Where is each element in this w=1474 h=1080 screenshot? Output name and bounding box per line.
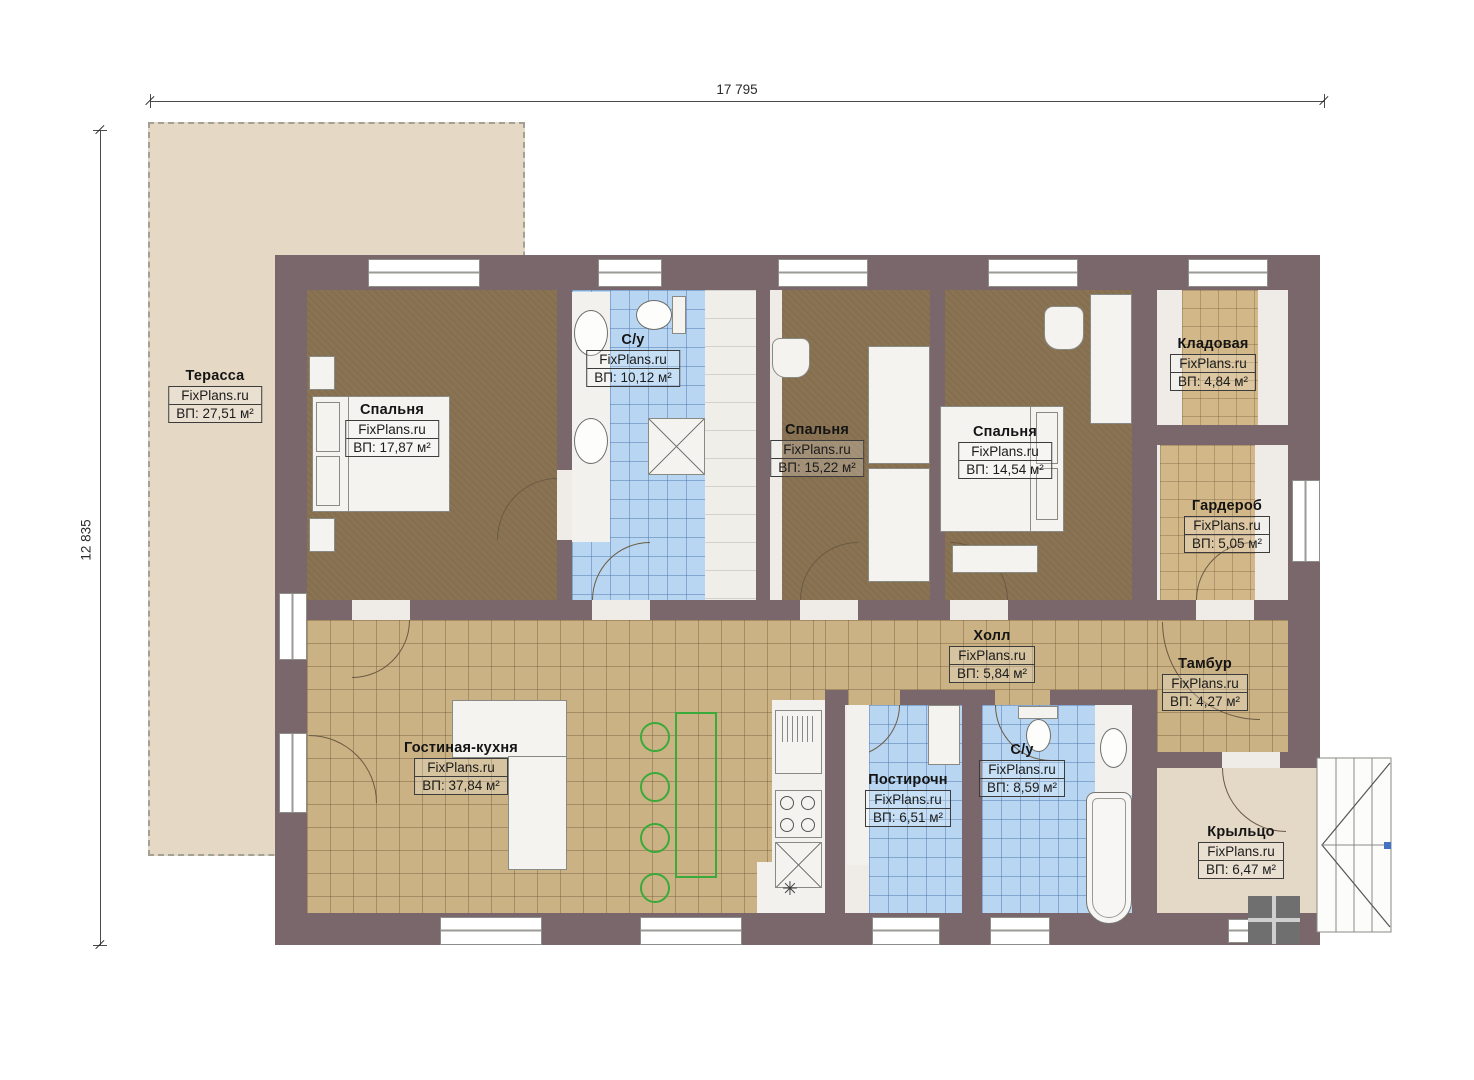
room-name: Гостиная-кухня <box>404 740 518 756</box>
wardrobe-cabinet <box>868 346 930 464</box>
floor-plan: 17 795 12 835 <box>0 0 1474 1080</box>
window <box>872 917 940 945</box>
room-name: Спальня <box>770 422 864 438</box>
room-name: Холл <box>949 628 1035 644</box>
wall <box>756 290 770 600</box>
burner <box>780 818 794 832</box>
window <box>440 917 542 945</box>
room-area: ВП: 10,12 м² <box>587 368 679 386</box>
room-area: ВП: 4,27 м² <box>1163 692 1247 710</box>
pillow <box>316 456 340 506</box>
terrace-door <box>279 733 307 813</box>
room-area: ВП: 17,87 м² <box>346 438 438 456</box>
room-brand: FixPlans.ru <box>1163 675 1247 692</box>
dimension-height-label: 12 835 <box>79 519 94 560</box>
wall <box>1008 600 1196 620</box>
dimension-line-left <box>100 130 101 945</box>
room-brand: FixPlans.ru <box>1171 355 1255 372</box>
column-marker <box>1248 896 1300 944</box>
desk-chair <box>1044 306 1084 350</box>
room-brand: FixPlans.ru <box>346 421 438 438</box>
window <box>368 259 480 287</box>
room-name: Спальня <box>345 402 439 418</box>
room-name: Спальня <box>958 424 1052 440</box>
room-area: ВП: 4,84 м² <box>1171 372 1255 390</box>
wall <box>410 600 592 620</box>
chair <box>640 722 670 752</box>
room-label-wardrobe: Гардероб FixPlans.ru ВП: 5,05 м² <box>1184 498 1270 553</box>
room-name: Постирочн <box>865 772 951 788</box>
room-brand: FixPlans.ru <box>980 761 1064 778</box>
toilet-tank <box>1018 706 1058 719</box>
chair <box>640 823 670 853</box>
wall <box>1254 600 1288 620</box>
room-brand: FixPlans.ru <box>169 387 261 404</box>
wall <box>557 540 572 600</box>
room-name: С/у <box>979 742 1065 758</box>
sink <box>574 418 608 464</box>
window <box>1188 259 1268 287</box>
wall <box>1132 690 1157 945</box>
room-label-storage: Кладовая FixPlans.ru ВП: 4,84 м² <box>1170 336 1256 391</box>
wall <box>1157 752 1222 768</box>
dining-table <box>675 712 717 878</box>
room-name: Кладовая <box>1170 336 1256 352</box>
room-brand: FixPlans.ru <box>1199 843 1283 860</box>
nightstand <box>309 518 335 552</box>
burner <box>780 796 794 810</box>
bathtub <box>1086 792 1132 924</box>
wall <box>900 690 995 705</box>
room-name: Терасса <box>168 368 262 384</box>
room-label-living: Гостиная-кухня FixPlans.ru ВП: 37,84 м² <box>404 740 518 795</box>
window <box>279 593 307 660</box>
room-label-hall: Холл FixPlans.ru ВП: 5,84 м² <box>949 628 1035 683</box>
room-label-tambour: Тамбур FixPlans.ru ВП: 4,27 м² <box>1162 656 1248 711</box>
room-brand: FixPlans.ru <box>587 351 679 368</box>
room-area: ВП: 37,84 м² <box>415 776 507 794</box>
wall <box>650 600 800 620</box>
wall <box>1050 690 1132 705</box>
shower <box>648 418 705 475</box>
room-brand: FixPlans.ru <box>415 759 507 776</box>
room-label-porch: Крыльцо FixPlans.ru ВП: 6,47 м² <box>1198 824 1284 879</box>
wall <box>858 600 950 620</box>
toilet-tank <box>672 296 686 334</box>
room-label-bedroom-1: Спальня FixPlans.ru ВП: 17,87 м² <box>345 402 439 457</box>
defrost-symbol: ✳ <box>782 878 798 901</box>
room-area: ВП: 6,47 м² <box>1199 860 1283 878</box>
dimension-line-top <box>150 101 1325 102</box>
room-label-bath-1: С/у FixPlans.ru ВП: 10,12 м² <box>586 332 680 387</box>
room-area: ВП: 14,54 м² <box>959 460 1051 478</box>
room-area: ВП: 27,51 м² <box>169 404 261 422</box>
wall <box>1157 425 1288 445</box>
room-label-laundry: Постирочн FixPlans.ru ВП: 6,51 м² <box>865 772 951 827</box>
window <box>778 259 868 287</box>
sink <box>1100 728 1127 768</box>
room-brand: FixPlans.ru <box>1185 517 1269 534</box>
wall <box>1132 290 1157 620</box>
wall <box>825 690 848 705</box>
wall <box>557 290 572 470</box>
dimension-width-label: 17 795 <box>716 82 757 97</box>
chair <box>640 772 670 802</box>
wall <box>825 705 845 913</box>
room-area: ВП: 5,84 м² <box>950 664 1034 682</box>
handle-dot <box>1384 842 1391 849</box>
dresser <box>952 545 1038 573</box>
room-label-bath-2: С/у FixPlans.ru ВП: 8,59 м² <box>979 742 1065 797</box>
room-name: Тамбур <box>1162 656 1248 672</box>
room-name: С/у <box>586 332 680 348</box>
chair <box>640 873 670 903</box>
armchair <box>772 338 810 378</box>
fridge-coils <box>782 716 815 742</box>
closet-strip <box>705 290 756 600</box>
wardrobe-cabinet <box>868 468 930 582</box>
window <box>988 259 1078 287</box>
room-area: ВП: 6,51 м² <box>866 808 950 826</box>
room-brand: FixPlans.ru <box>959 443 1051 460</box>
room-area: ВП: 8,59 м² <box>980 778 1064 796</box>
room-brand: FixPlans.ru <box>866 791 950 808</box>
window <box>598 259 662 287</box>
wall <box>307 600 352 620</box>
wall <box>1280 752 1288 768</box>
room-label-terrace: Терасса FixPlans.ru ВП: 27,51 м² <box>168 368 262 423</box>
room-name: Гардероб <box>1184 498 1270 514</box>
desk <box>1090 294 1132 424</box>
room-label-bedroom-3: Спальня FixPlans.ru ВП: 14,54 м² <box>958 424 1052 479</box>
room-area: ВП: 5,05 м² <box>1185 534 1269 552</box>
wall <box>962 705 982 913</box>
window <box>640 917 742 945</box>
nightstand <box>309 356 335 390</box>
window <box>990 917 1050 945</box>
pillow <box>316 402 340 452</box>
window <box>1292 480 1320 562</box>
burner <box>801 796 815 810</box>
room-brand: FixPlans.ru <box>771 441 863 458</box>
room-label-bedroom-2: Спальня FixPlans.ru ВП: 15,22 м² <box>770 422 864 477</box>
toilet <box>636 300 672 330</box>
washer <box>928 705 960 765</box>
room-name: Крыльцо <box>1198 824 1284 840</box>
room-area: ВП: 15,22 м² <box>771 458 863 476</box>
porch-stairs <box>1316 757 1392 933</box>
room-brand: FixPlans.ru <box>950 647 1034 664</box>
burner <box>801 818 815 832</box>
